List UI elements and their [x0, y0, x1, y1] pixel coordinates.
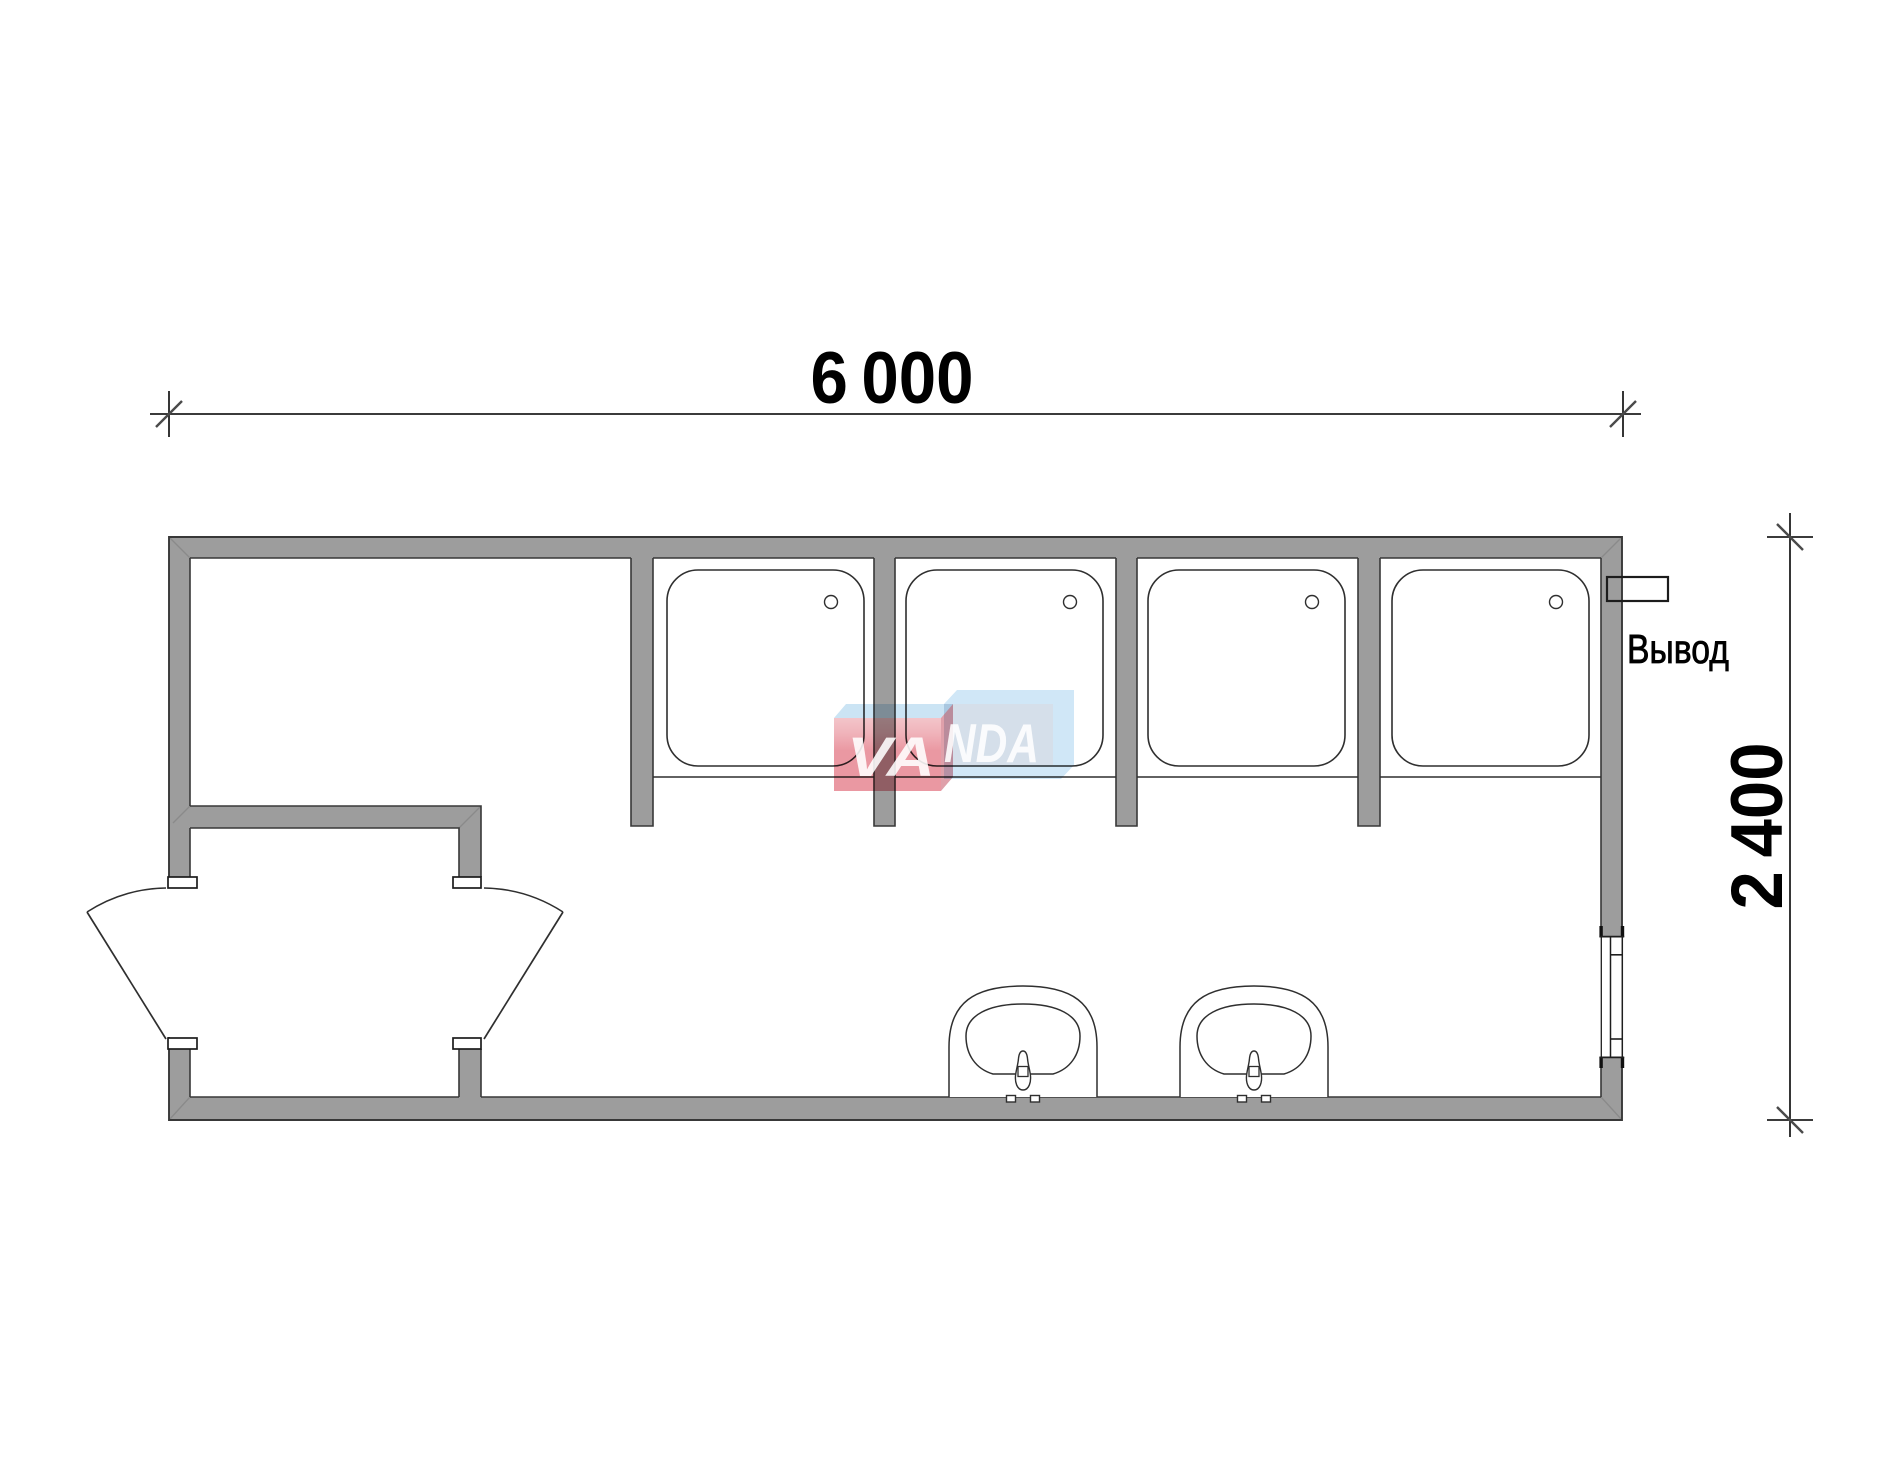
- svg-text:VA: VA: [847, 725, 935, 788]
- svg-text:6 000: 6 000: [811, 338, 974, 419]
- svg-text:Вывод: Вывод: [1627, 626, 1729, 672]
- svg-text:NDA: NDA: [944, 712, 1039, 774]
- svg-text:2 400: 2 400: [1717, 743, 1798, 910]
